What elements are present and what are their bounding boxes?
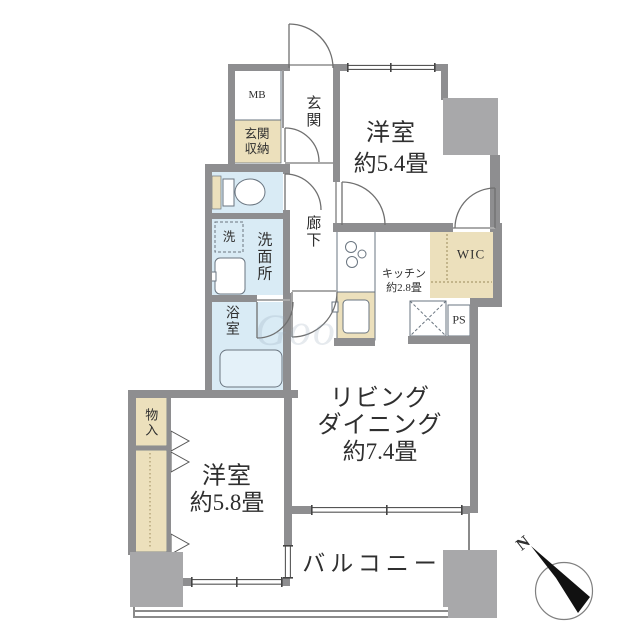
label-meter-box: MB [248,89,265,101]
compass [531,546,593,620]
label-kitchen-size: 約2.8畳 [386,282,422,294]
label-entrance-storage-2: 収納 [244,142,269,156]
label-bedroom54-size: 約5.4畳 [354,151,429,177]
genkan-step [285,162,333,164]
wic-box [430,232,493,298]
kitchen-counter [337,230,375,292]
label-corridor: 廊下 [304,215,321,249]
label-living-1: リビング [330,386,430,413]
label-entrance: 玄関 [304,95,321,129]
label-washroom: 洗面所 [255,232,272,283]
compass-circle [536,563,593,620]
label-kitchen-name: キッチン [382,268,426,280]
toilet-shelf [212,176,221,209]
label-living-3: 約7.4畳 [343,439,418,465]
balcony-divider [468,514,470,551]
floorplan-page: MB 玄関 玄関 収納 洋室 約5.4畳 廊下 洗 洗面所 浴室 キッチン 約2… [0,0,640,640]
kitchen-sink [343,300,369,333]
label-entrance-storage-1: 玄関 [244,127,269,141]
label-pipe-space: PS [452,313,465,326]
pillars [130,98,498,618]
pillar-bottom-right-notch [448,607,497,618]
label-bedroom54-name: 洋室 [366,121,416,148]
label-bedroom58-name: 洋室 [202,464,252,491]
label-balcony: バルコニー [302,551,442,577]
label-wic: WIC [457,248,485,263]
toilet-bowl [235,179,265,205]
pillar-bottom-right [443,550,497,607]
pillar-bottom-left [130,552,183,607]
closet-chevrons [171,431,189,554]
label-bathroom: 浴室 [223,305,239,337]
wash-basin [215,258,245,294]
bathtub [220,350,282,387]
toilet-tank [223,179,234,206]
label-bedroom58-size: 約5.8畳 [190,490,265,516]
pillar-top-right [443,98,498,155]
label-storage: 物入 [143,408,158,438]
label-washer: 洗 [223,230,236,244]
label-living-2: ダイニング [318,413,443,440]
watermark: Goo [255,305,337,356]
